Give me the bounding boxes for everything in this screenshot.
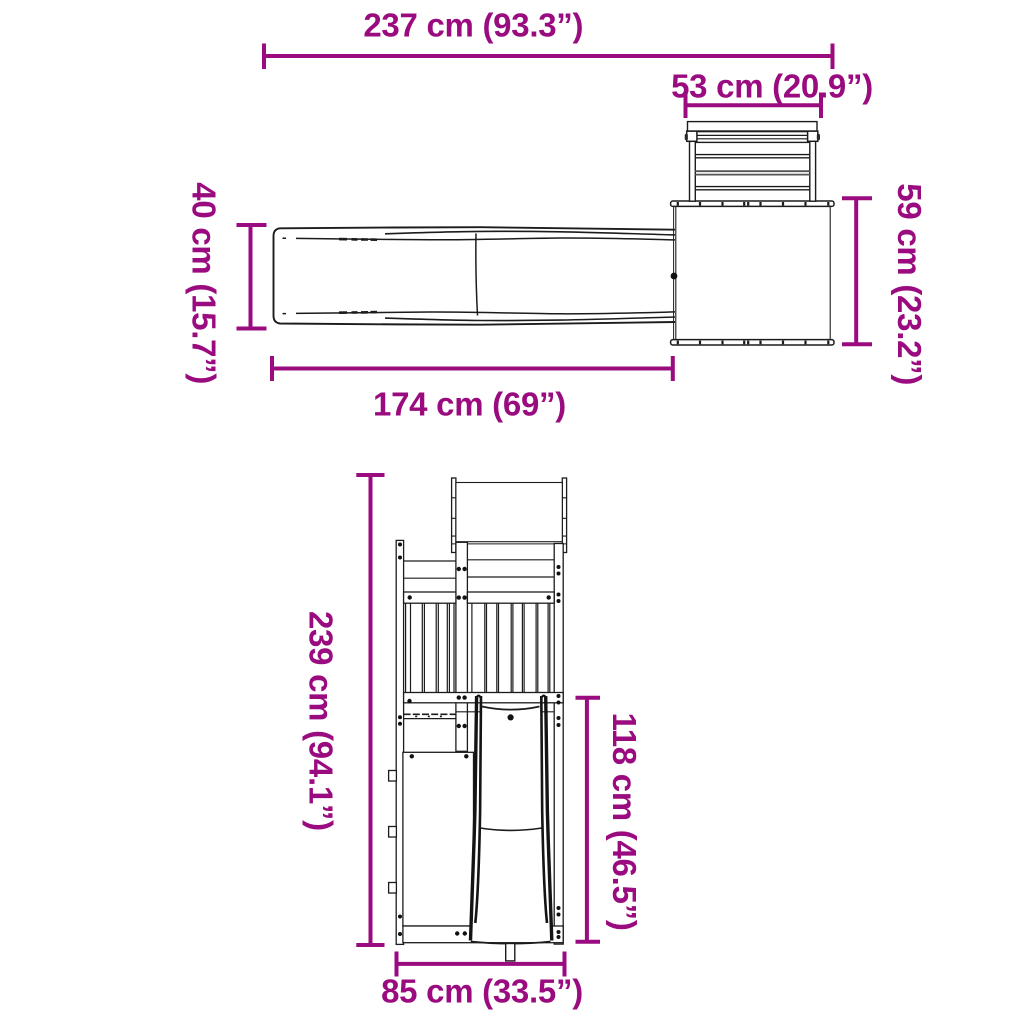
svg-text:239 cm (94.1”): 239 cm (94.1”) <box>302 611 339 831</box>
svg-text:85 cm (33.5”): 85 cm (33.5”) <box>381 973 583 1010</box>
svg-text:40 cm (15.7”): 40 cm (15.7”) <box>186 182 223 384</box>
svg-text:174 cm (69”): 174 cm (69”) <box>373 385 566 422</box>
svg-text:118 cm (46.5”): 118 cm (46.5”) <box>606 712 643 930</box>
svg-text:59 cm (23.2”): 59 cm (23.2”) <box>891 183 928 385</box>
svg-text:53 cm (20.9”): 53 cm (20.9”) <box>671 67 873 104</box>
svg-text:237 cm (93.3”): 237 cm (93.3”) <box>363 7 583 44</box>
